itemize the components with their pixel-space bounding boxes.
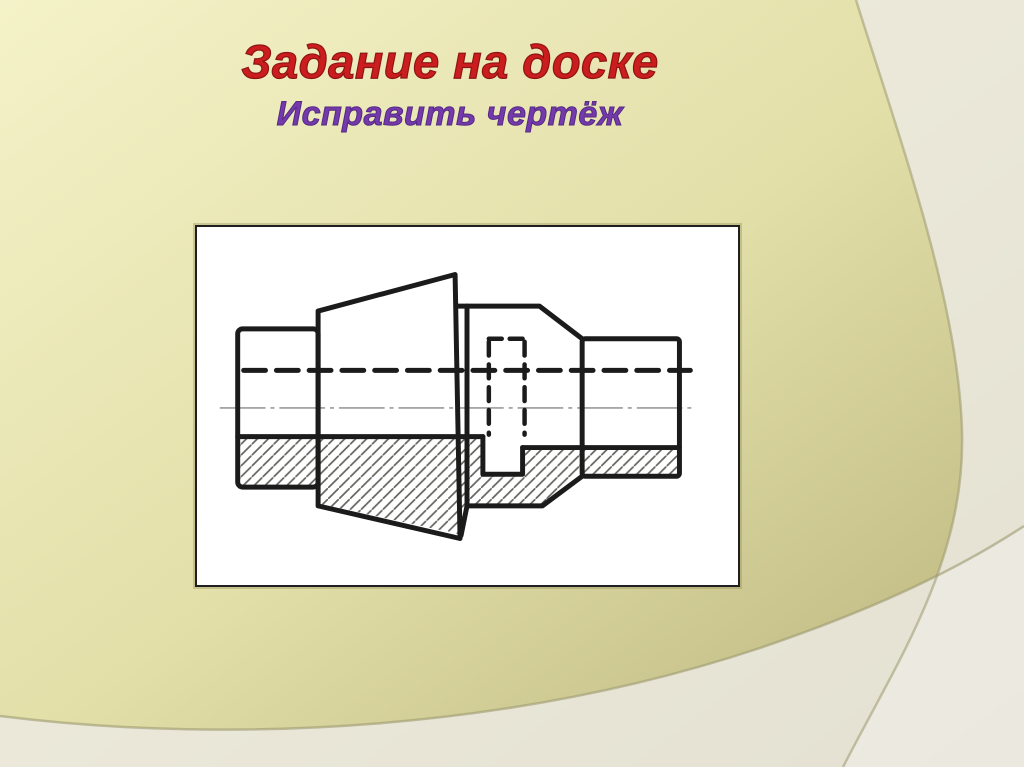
- technical-drawing: [197, 227, 738, 585]
- slot-outline: [483, 437, 523, 475]
- presentation-slide: Задание на доске Исправить чертёж: [0, 0, 1024, 767]
- slide-subtitle: Исправить чертёж: [0, 95, 900, 134]
- hub-top-chamfer: [457, 306, 582, 339]
- title-block: Задание на доске Исправить чертёж: [0, 34, 900, 134]
- hatch-left-collar: [240, 439, 316, 485]
- hatch-right-collar: [584, 450, 677, 475]
- drawing-frame: [195, 225, 740, 587]
- slide-title: Задание на доске: [0, 34, 900, 89]
- hatch-body: [320, 439, 580, 535]
